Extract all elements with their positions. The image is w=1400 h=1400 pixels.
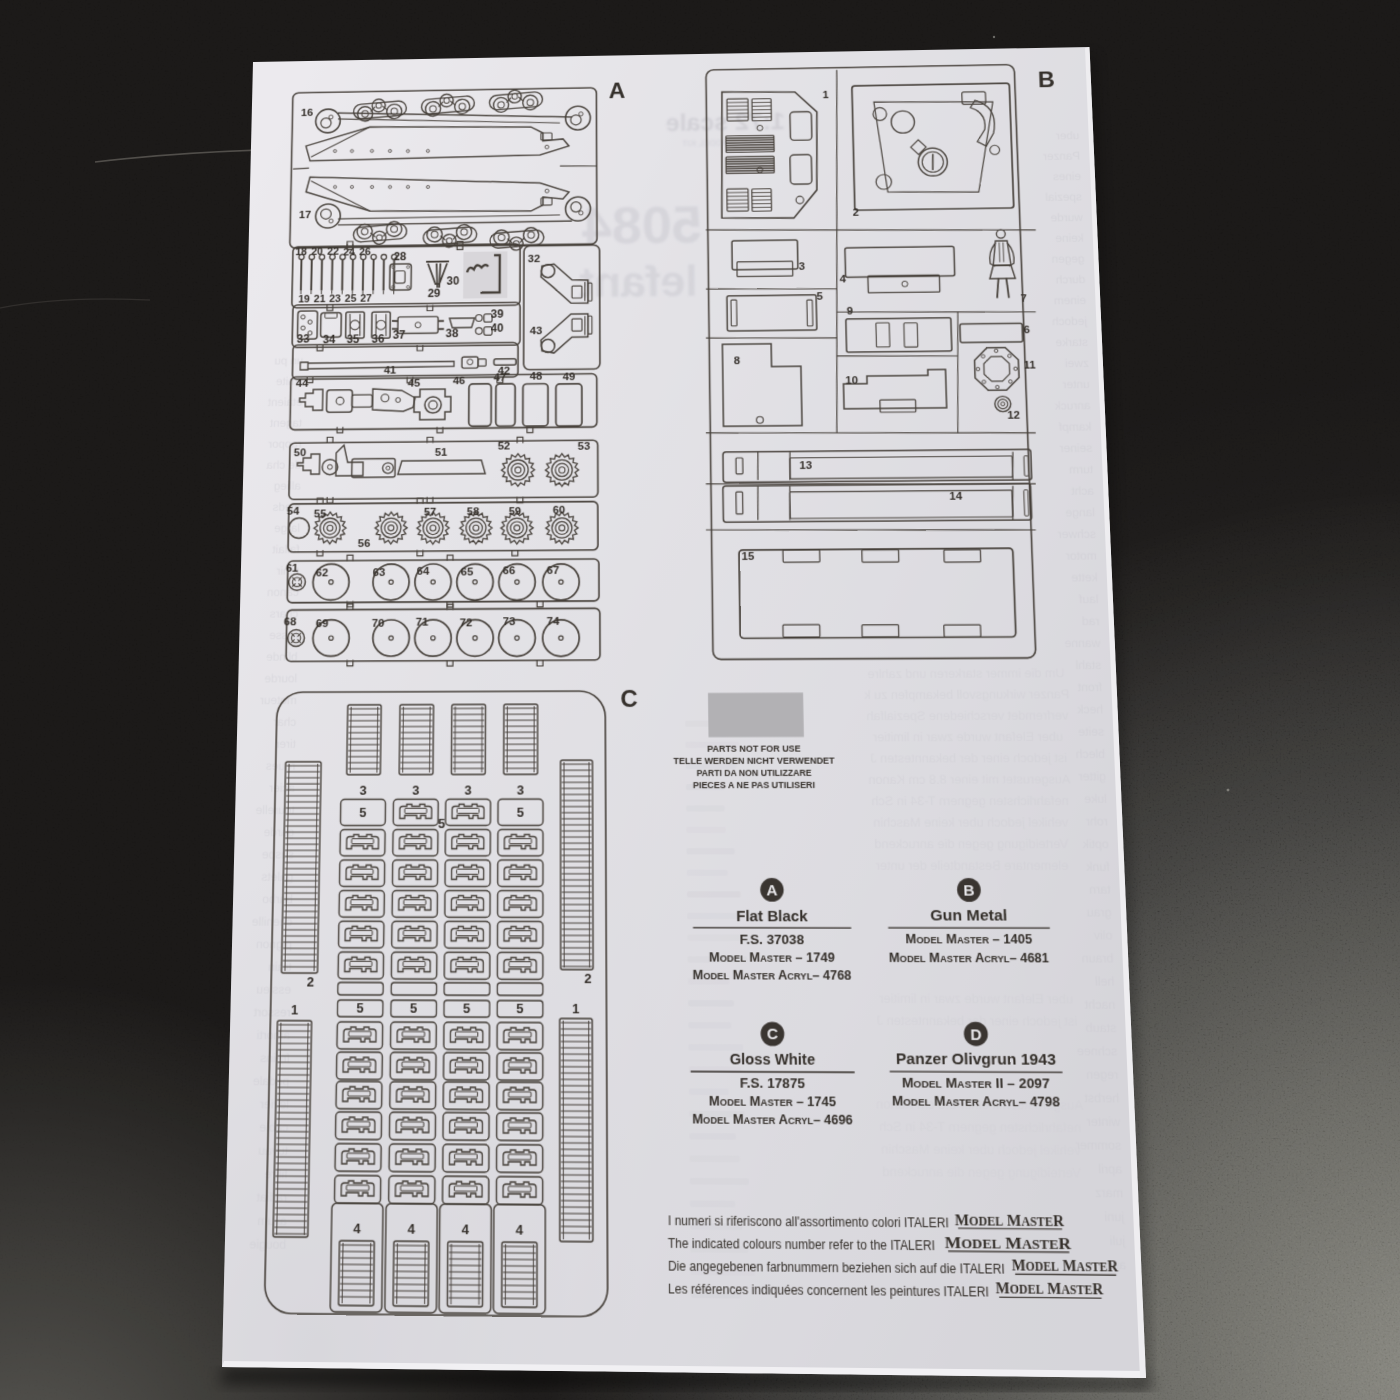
svg-text:lange: lange	[1065, 507, 1095, 520]
svg-text:de cha: de cha	[265, 459, 301, 472]
svg-text:herbst: herbst	[1084, 1092, 1119, 1106]
svg-text:Model Master Acryl– 4696: Model Master Acryl– 4696	[692, 1111, 853, 1128]
svg-text:PARTS NOT FOR USE: PARTS NOT FOR USE	[707, 743, 801, 754]
svg-text:kette: kette	[1071, 572, 1098, 585]
svg-text:winter: winter	[1086, 1115, 1122, 1129]
svg-text:uber Elefant wurde zwar in lim: uber Elefant wurde zwar in limitier	[879, 992, 1074, 1006]
svg-text:74: 74	[547, 616, 560, 628]
svg-text:hell: hell	[1095, 975, 1115, 989]
svg-text:4: 4	[408, 1221, 416, 1238]
svg-text:A: A	[609, 78, 626, 103]
svg-text:MODEL MASTER: MODEL MASTER	[995, 1279, 1103, 1298]
svg-text:Model Master Acryl– 4681: Model Master Acryl– 4681	[889, 949, 1050, 965]
svg-text:38: 38	[446, 328, 459, 341]
svg-text:48: 48	[530, 372, 543, 384]
svg-text:Model Master – 1749: Model Master – 1749	[709, 949, 835, 965]
svg-text:durch: durch	[1056, 274, 1086, 287]
svg-text:anruck: anruck	[1054, 400, 1091, 413]
svg-text:1: 1	[572, 1001, 580, 1017]
svg-text:gegen: gegen	[1051, 253, 1084, 266]
svg-text:67: 67	[547, 565, 560, 577]
svg-text:front: front	[1078, 681, 1103, 694]
svg-text:The indicated colours number r: The indicated colours number refer to th…	[668, 1235, 935, 1254]
svg-text:Model Master II – 2097: Model Master II – 2097	[902, 1075, 1051, 1092]
svg-text:fallait: fallait	[272, 544, 299, 557]
svg-text:nacht: nacht	[1085, 998, 1116, 1012]
svg-text:72: 72	[460, 617, 473, 629]
svg-text:1: 1	[823, 90, 830, 101]
svg-text:oliv: oliv	[1093, 929, 1113, 943]
svg-text:uber Elefant wurde zwar in lim: uber Elefant wurde zwar in limitier	[873, 731, 1064, 745]
svg-text:62: 62	[316, 567, 329, 579]
svg-text:nefahrlichsten gegnern T-34 in: nefahrlichsten gegnern T-34 in Sch	[879, 1120, 1081, 1135]
svg-text:nefahrlichsten gegnern T-34 in: nefahrlichsten gegnern T-34 in Sch	[871, 795, 1069, 809]
svg-text:allum: allum	[257, 1214, 286, 1228]
svg-text:4: 4	[516, 1222, 524, 1239]
svg-text:pignon: pignon	[256, 938, 292, 952]
svg-text:staub: staub	[1086, 1022, 1117, 1036]
svg-text:grau: grau	[1086, 906, 1111, 920]
svg-text:Les références indiquées conce: Les références indiquées concernent les …	[668, 1281, 989, 1301]
svg-text:bougie: bougie	[249, 1238, 286, 1252]
svg-text:rohr: rohr	[1085, 815, 1108, 829]
svg-text:18: 18	[295, 247, 307, 258]
svg-text:59: 59	[509, 506, 522, 518]
svg-text:acht: acht	[1071, 485, 1094, 498]
svg-text:F.S. 37038: F.S. 37038	[740, 931, 805, 947]
svg-text:5: 5	[410, 1001, 418, 1017]
svg-text:Die angegebenen farbnummern be: Die angegebenen farbnummern beziehen sic…	[668, 1258, 1005, 1278]
svg-text:Model Master Acryl– 4768: Model Master Acryl– 4768	[693, 967, 852, 983]
svg-text:7: 7	[1020, 294, 1027, 306]
svg-text:49: 49	[563, 372, 576, 384]
svg-text:starke: starke	[1055, 336, 1088, 349]
svg-text:B: B	[1038, 67, 1056, 92]
svg-text:spezial: spezial	[1045, 191, 1082, 204]
svg-text:63: 63	[373, 567, 386, 579]
svg-text:54: 54	[287, 507, 300, 519]
svg-text:gitter: gitter	[1078, 770, 1106, 783]
svg-text:juni: juni	[1104, 1210, 1125, 1225]
svg-text:25: 25	[345, 294, 357, 305]
svg-text:lourde: lourde	[264, 673, 297, 686]
svg-text:69: 69	[316, 618, 329, 630]
svg-text:canon: canon	[267, 586, 299, 599]
svg-text:61: 61	[286, 563, 299, 575]
svg-text:MODEL MASTER: MODEL MASTER	[954, 1211, 1064, 1230]
svg-text:22: 22	[327, 247, 339, 258]
svg-text:regen: regen	[1086, 1068, 1119, 1082]
svg-text:20: 20	[311, 247, 323, 258]
svg-text:turm: turm	[1069, 464, 1093, 477]
svg-text:unter: unter	[1062, 379, 1090, 392]
svg-text:luke: luke	[1084, 793, 1107, 807]
svg-text:Model Master – 1405: Model Master – 1405	[905, 931, 1032, 947]
svg-text:kampf: kampf	[1058, 421, 1092, 434]
svg-text:PARTI DA NON UTILIZZARE: PARTI DA NON UTILIZZARE	[696, 767, 811, 778]
svg-text:23: 23	[329, 294, 341, 305]
svg-text:Panzer: Panzer	[1043, 150, 1081, 163]
svg-text:4: 4	[840, 275, 847, 286]
svg-text:1: 1	[291, 1002, 299, 1018]
svg-text:52: 52	[498, 441, 511, 453]
svg-text:50: 50	[294, 448, 307, 460]
svg-text:MODEL MASTER: MODEL MASTER	[945, 1234, 1072, 1253]
svg-text:2: 2	[853, 208, 860, 219]
svg-text:rad: rad	[1082, 615, 1100, 628]
svg-text:A: A	[766, 882, 777, 899]
svg-text:28: 28	[394, 251, 407, 263]
svg-text:17: 17	[299, 210, 311, 221]
svg-text:39: 39	[491, 309, 504, 322]
svg-text:seiner: seiner	[1059, 442, 1092, 455]
svg-text:sommer: sommer	[1075, 1139, 1122, 1153]
svg-text:stahl: stahl	[1075, 659, 1101, 672]
svg-text:B: B	[963, 882, 975, 899]
svg-text:Gun Metal: Gun Metal	[930, 906, 1008, 924]
svg-text:jedoch: jedoch	[1052, 315, 1088, 328]
svg-text:56: 56	[358, 538, 371, 550]
svg-text:braun: braun	[1081, 952, 1113, 966]
svg-text:verfremdet verschiedene Spezia: verfremdet verschiedene Spezialfah	[866, 710, 1068, 724]
svg-text:15: 15	[741, 551, 754, 563]
svg-text:wurde: wurde	[1050, 212, 1084, 225]
svg-text:3: 3	[412, 783, 420, 798]
svg-text:9: 9	[847, 307, 854, 319]
svg-text:galets: galets	[261, 871, 294, 884]
svg-text:3: 3	[517, 782, 525, 798]
svg-text:motor: motor	[1065, 550, 1097, 563]
svg-text:D: D	[970, 1026, 982, 1043]
svg-text:large: large	[274, 522, 300, 535]
svg-text:51: 51	[435, 448, 448, 460]
svg-text:marz: marz	[1095, 1186, 1124, 1201]
svg-text:seite: seite	[1078, 726, 1104, 739]
svg-text:pedale: pedale	[253, 1075, 290, 1089]
svg-text:ist jedoch einer der bekanntes: ist jedoch einer der bekanntesten J	[870, 752, 1067, 766]
svg-text:allieg: allieg	[274, 480, 301, 493]
svg-text:5: 5	[359, 805, 367, 821]
svg-text:elementare Bestandteile der un: elementare Bestandteile der unter	[875, 860, 1068, 874]
svg-text:I numeri si riferiscono all'as: I numeri si riferiscono all'assortimento…	[668, 1212, 949, 1231]
svg-text:46: 46	[453, 376, 466, 388]
svg-text:einem: einem	[1054, 295, 1087, 308]
svg-text:optik: optik	[1082, 838, 1109, 852]
svg-text:4: 4	[462, 1221, 470, 1238]
svg-text:F.S. 17875: F.S. 17875	[740, 1075, 805, 1092]
svg-text:barbo: barbo	[262, 893, 293, 906]
svg-text:keine: keine	[1055, 232, 1084, 245]
svg-text:24: 24	[343, 247, 355, 258]
svg-text:tirer: tirer	[275, 738, 296, 751]
svg-text:juli: juli	[1109, 1234, 1126, 1249]
svg-text:schwer: schwer	[1057, 528, 1096, 541]
svg-text:19: 19	[298, 294, 310, 305]
svg-text:2: 2	[584, 971, 592, 987]
svg-text:tagent: tagent	[270, 417, 302, 430]
svg-text:Model Master Acryl– 4798: Model Master Acryl– 4798	[892, 1093, 1061, 1110]
svg-text:4: 4	[353, 1220, 361, 1237]
svg-text:5: 5	[517, 805, 525, 821]
svg-text:heck: heck	[1076, 703, 1103, 716]
svg-text:funk: funk	[1085, 861, 1110, 875]
svg-text:14: 14	[949, 491, 962, 503]
svg-text:wanne: wanne	[1064, 637, 1101, 650]
svg-text:ressort: ressort	[254, 1006, 291, 1020]
svg-text:2: 2	[307, 974, 315, 990]
svg-text:5: 5	[516, 1001, 524, 1017]
svg-text:Gloss White: Gloss White	[730, 1050, 816, 1069]
svg-text:45: 45	[408, 379, 421, 391]
svg-text:PIECES A NE PAS UTILISERI: PIECES A NE PAS UTILISERI	[693, 779, 815, 790]
svg-text:Panzer Olivgrun 1943: Panzer Olivgrun 1943	[896, 1049, 1057, 1068]
svg-text:43: 43	[530, 326, 543, 338]
svg-text:57: 57	[424, 507, 437, 519]
svg-text:vehikel jedoch uber keine Masc: vehikel jedoch uber keine Maschin	[873, 816, 1068, 830]
svg-text:37: 37	[393, 330, 406, 343]
svg-text:moteur: moteur	[260, 694, 297, 707]
svg-text:Flat Black: Flat Black	[736, 906, 808, 924]
svg-text:21: 21	[314, 294, 326, 305]
svg-text:5: 5	[356, 1001, 364, 1017]
svg-text:29: 29	[428, 288, 441, 300]
svg-text:vehikel jedoch uber keine Masc: vehikel jedoch uber keine Maschin	[881, 1143, 1081, 1158]
svg-text:Model Master – 1745: Model Master – 1745	[709, 1093, 837, 1110]
svg-text:garde: garde	[264, 826, 295, 839]
svg-text:uber: uber	[1055, 130, 1079, 143]
svg-text:66: 66	[503, 565, 516, 577]
svg-text:etaient: etaient	[268, 396, 303, 409]
svg-text:65: 65	[461, 566, 474, 578]
svg-text:TELLE WERDEN NICHT VERWENDET: TELLE WERDEN NICHT VERWENDET	[673, 755, 835, 766]
svg-text:un pu: un pu	[274, 355, 303, 368]
svg-text:april: april	[1098, 1163, 1122, 1177]
svg-text:blech: blech	[1075, 748, 1105, 761]
svg-text:3: 3	[465, 782, 473, 798]
svg-text:58: 58	[467, 506, 480, 518]
svg-text:16: 16	[301, 108, 313, 119]
svg-text:3: 3	[799, 262, 806, 273]
svg-text:3: 3	[360, 783, 368, 798]
svg-text:53: 53	[578, 441, 591, 453]
svg-text:Panzer wirkungsvoll bekampfen: Panzer wirkungsvoll bekampfen zu k	[864, 688, 1070, 702]
svg-text:eines: eines	[1052, 171, 1081, 184]
svg-text:6: 6	[1023, 325, 1030, 337]
svg-text:tuyau: tuyau	[258, 1144, 288, 1158]
svg-text:Verteidigung gegen die anrucke: Verteidigung gegen die anruckend	[882, 1165, 1081, 1181]
svg-text:70: 70	[372, 618, 385, 630]
svg-text:68: 68	[284, 616, 297, 628]
svg-text:60: 60	[553, 505, 566, 517]
svg-text:cable: cable	[259, 1121, 288, 1135]
svg-text:Ausgerustet mit einer 8.8 cm K: Ausgerustet mit einer 8.8 cm Kanon	[868, 773, 1070, 787]
svg-text:radiat: radiat	[256, 1191, 287, 1205]
svg-text:12: 12	[1007, 410, 1020, 422]
svg-text:5084: 5084	[581, 195, 702, 255]
svg-text:essieu: essieu	[256, 983, 291, 997]
svg-text:13: 13	[799, 460, 812, 472]
svg-text:10: 10	[845, 375, 858, 387]
svg-text:32: 32	[528, 254, 540, 265]
svg-text:5: 5	[438, 816, 446, 832]
svg-text:schnee: schnee	[1077, 1045, 1118, 1059]
svg-text:26: 26	[359, 247, 371, 258]
svg-text:Um die immer starkeren und zah: Um die immer starkeren und zahlre	[868, 667, 1065, 681]
svg-text:8: 8	[734, 356, 741, 368]
svg-text:73: 73	[503, 616, 516, 628]
svg-text:5: 5	[463, 1001, 471, 1017]
svg-text:5: 5	[817, 292, 824, 303]
svg-text:Verteidigung gegen die anrucke: Verteidigung gegen die anruckend	[874, 838, 1068, 852]
svg-text:64: 64	[417, 566, 430, 578]
svg-text:lauf: lauf	[1078, 593, 1099, 606]
svg-text:C: C	[620, 685, 638, 712]
svg-text:freins: freins	[260, 1052, 290, 1066]
svg-text:55: 55	[314, 509, 327, 521]
svg-text:zwei: zwei	[1065, 357, 1089, 370]
svg-text:tarn: tarn	[1089, 883, 1111, 897]
svg-text:71: 71	[416, 617, 429, 629]
svg-text:lefant: lefant	[579, 256, 698, 306]
svg-text:40: 40	[491, 323, 504, 336]
svg-text:30: 30	[447, 276, 460, 288]
svg-text:11: 11	[1023, 360, 1036, 372]
svg-text:C: C	[767, 1026, 779, 1043]
